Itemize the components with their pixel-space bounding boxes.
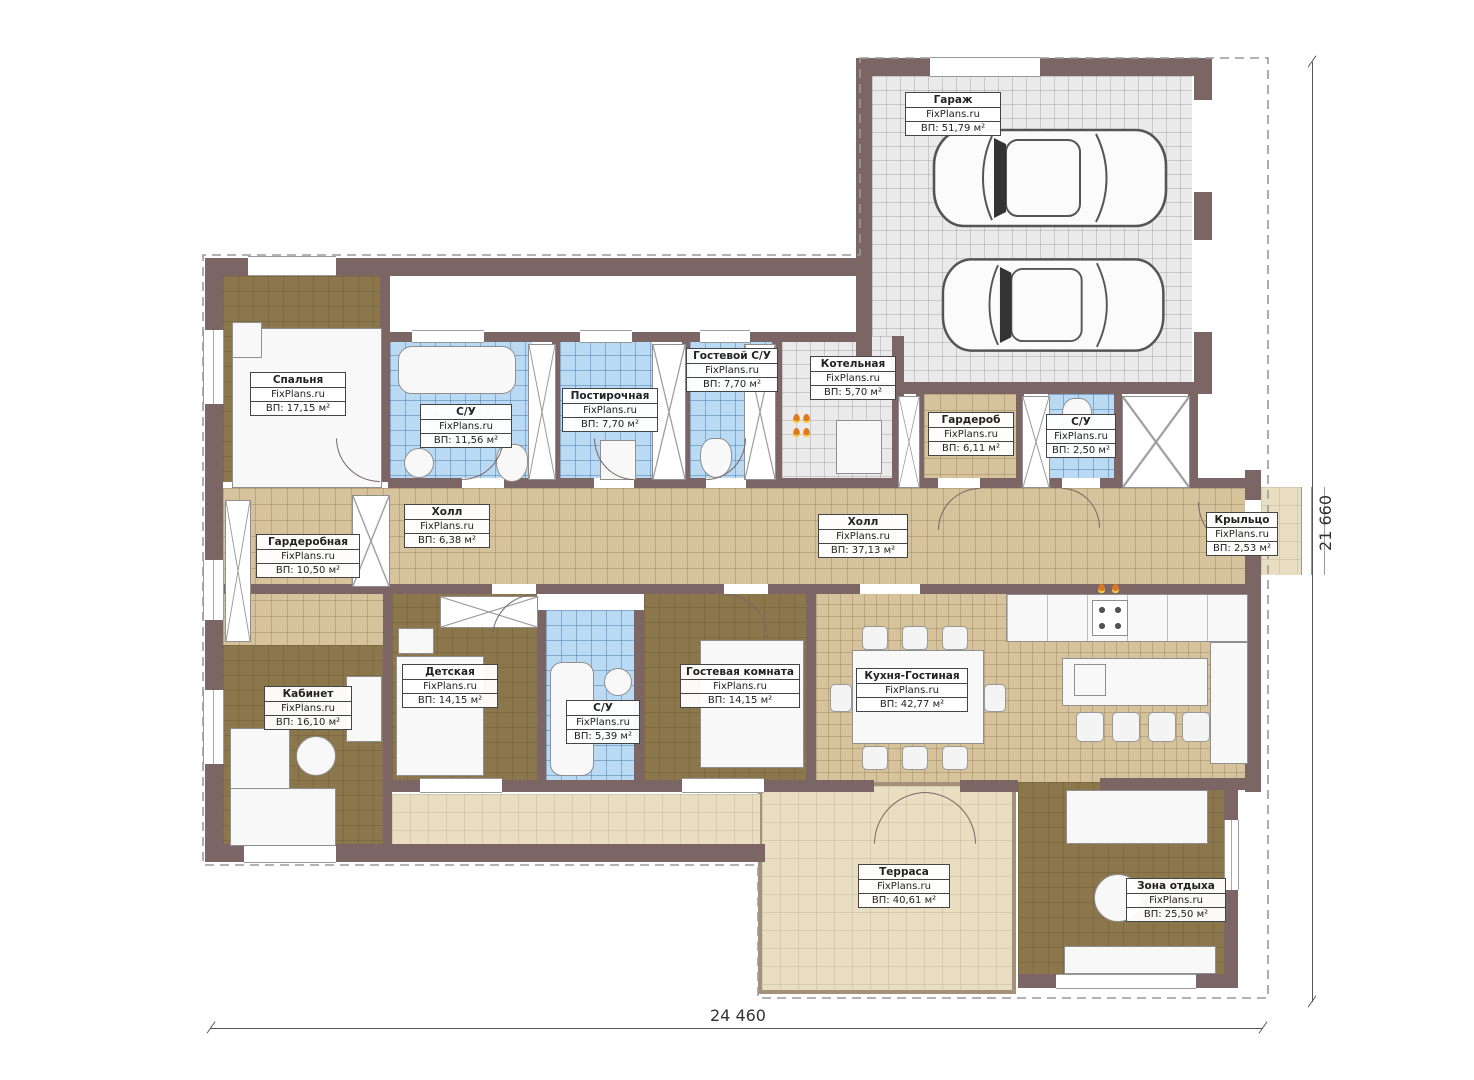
lounge-sofa [1066,790,1208,844]
sofa-section-horizontal [230,788,336,846]
room-area: ВП: 51,79 м² [905,122,1001,136]
nightstand [232,322,262,358]
room-area: ВП: 16,10 м² [264,716,352,730]
bar-stool [1182,712,1210,742]
car-icon [928,118,1178,238]
window-guest-bottom [682,778,764,793]
room-area: ВП: 2,50 м² [1046,444,1116,458]
watermark: FixPlans.ru [905,108,1001,122]
room-label-bathroom-2: С/У FixPlans.ru ВП: 5,39 м² [566,700,640,744]
room-name: Котельная [810,356,896,372]
room-label-garage: Гараж FixPlans.ru ВП: 51,79 м² [905,92,1001,136]
door-gap-guest-room [724,584,768,594]
room-name: Холл [818,514,908,530]
room-name: Постирочная [562,388,658,404]
dining-chair [942,746,968,770]
door-gap-kids [492,584,536,594]
room-name: Холл [404,504,490,520]
dimension-line-bottom [210,1028,1263,1029]
room-area: ВП: 40,61 м² [858,894,950,908]
watermark: FixPlans.ru [264,702,352,716]
room-label-lounge: Зона отдыха FixPlans.ru ВП: 25,50 м² [1126,878,1226,922]
window-guest-wc [700,330,750,343]
room-label-terrace: Терраса FixPlans.ru ВП: 40,61 м² [858,864,950,908]
dining-chair [902,746,928,770]
window-office-left [203,690,224,764]
room-name: Кухня-Гостиная [856,668,968,684]
bathtub [398,346,516,394]
room-area: ВП: 7,70 м² [562,418,658,432]
car-icon [936,248,1176,362]
flame-icon [793,414,800,423]
closet-x-icon [898,396,920,488]
dining-chair [830,684,852,712]
room-area: ВП: 10,50 м² [256,564,360,578]
watermark: FixPlans.ru [250,388,346,402]
watermark: FixPlans.ru [928,428,1014,442]
room-area: ВП: 5,70 м² [810,386,896,400]
watermark: FixPlans.ru [686,364,778,378]
room-name: Терраса [858,864,950,880]
flame-icon [803,428,810,437]
window-lounge-bottom [1056,974,1196,989]
room-name: Кабинет [264,686,352,702]
sink [604,668,632,696]
bar-stool [1148,712,1176,742]
coffee-table [296,736,336,776]
garage-door-2 [1194,240,1212,332]
room-name: С/У [420,404,512,420]
room-name: Гостевой С/У [686,348,778,364]
watermark: FixPlans.ru [402,680,498,694]
closet-x-icon [528,344,556,480]
garage-door-1 [1194,100,1212,192]
room-area: ВП: 37,13 м² [818,544,908,558]
dining-chair [862,626,888,650]
room-name: Гардеробная [256,534,360,550]
room-name: Зона отдыха [1126,878,1226,894]
room-label-wardrobe-room: Гардеробная FixPlans.ru ВП: 10,50 м² [256,534,360,578]
stove [1092,600,1128,636]
dimension-width-label: 24 460 [710,1006,766,1025]
room-area: ВП: 14,15 м² [680,694,800,708]
room-label-kitchen-living: Кухня-Гостиная FixPlans.ru ВП: 42,77 м² [856,668,968,712]
boiler-unit [836,420,882,474]
bar-stool [1112,712,1140,742]
room-label-bathroom-main: С/У FixPlans.ru ВП: 11,56 м² [420,404,512,448]
watermark: FixPlans.ru [680,680,800,694]
watermark: FixPlans.ru [810,372,896,386]
room-name: Гостевая комната [680,664,800,680]
closet-x-icon [225,500,251,642]
room-label-guest-wc: Гостевой С/У FixPlans.ru ВП: 7,70 м² [686,348,778,392]
watermark: FixPlans.ru [1206,528,1278,542]
room-name: Гардероб [928,412,1014,428]
island-sink [1074,664,1106,696]
dimension-height-label: 21 660 [1316,495,1335,551]
watermark: FixPlans.ru [256,550,360,564]
door-gap-wc-small [1062,478,1100,488]
tv-bench [1064,946,1216,974]
room-label-guest-room: Гостевая комната FixPlans.ru ВП: 14,15 м… [680,664,800,708]
watermark: FixPlans.ru [562,404,658,418]
room-name: С/У [1046,414,1116,430]
dining-chair [902,626,928,650]
watermark: FixPlans.ru [1046,430,1116,444]
room-label-office: Кабинет FixPlans.ru ВП: 16,10 м² [264,686,352,730]
room-label-hall-small: Холл FixPlans.ru ВП: 6,38 м² [404,504,490,548]
window-laundry [580,330,632,343]
dining-chair [862,746,888,770]
window-bath-main [412,330,484,343]
dimension-line-right [1312,62,1313,1002]
nightstand [398,628,434,654]
window-bedroom-left [203,330,224,404]
flame-icon [1098,584,1105,593]
room-area: ВП: 6,38 м² [404,534,490,548]
room-area: ВП: 17,15 м² [250,402,346,416]
room-area: ВП: 5,39 м² [566,730,640,744]
watermark: FixPlans.ru [1126,894,1226,908]
room-label-laundry: Постирочная FixPlans.ru ВП: 7,70 м² [562,388,658,432]
bar-stool [1076,712,1104,742]
watermark: FixPlans.ru [404,520,490,534]
room-area: ВП: 6,11 м² [928,442,1014,456]
room-label-kids-room: Детская FixPlans.ru ВП: 14,15 м² [402,664,498,708]
room-area: ВП: 42,77 м² [856,698,968,712]
watermark: FixPlans.ru [858,880,950,894]
room-name: С/У [566,700,640,716]
watermark: FixPlans.ru [818,530,908,544]
room-label-wardrobe: Гардероб FixPlans.ru ВП: 6,11 м² [928,412,1014,456]
door-gap-kitchen [860,584,920,594]
room-label-porch: Крыльцо FixPlans.ru ВП: 2,53 м² [1206,512,1278,556]
room-label-boiler: Котельная FixPlans.ru ВП: 5,70 м² [810,356,896,400]
watermark: FixPlans.ru [856,684,968,698]
window-lounge-right [1224,820,1239,890]
room-area: ВП: 7,70 м² [686,378,778,392]
room-label-wc-small: С/У FixPlans.ru ВП: 2,50 м² [1046,414,1116,458]
tall-cabinet [1210,642,1248,764]
dining-chair [942,626,968,650]
room-area: ВП: 14,15 м² [402,694,498,708]
room-name: Крыльцо [1206,512,1278,528]
window-wardrobe-left [203,560,224,620]
watermark: FixPlans.ru [420,420,512,434]
dining-chair [984,684,1006,712]
room-name: Спальня [250,372,346,388]
room-name: Детская [402,664,498,680]
window-kids-bottom [420,778,502,793]
floor-plan: Гараж FixPlans.ru ВП: 51,79 м² Спальня F… [0,0,1474,1080]
room-label-hall-main: Холл FixPlans.ru ВП: 37,13 м² [818,514,908,558]
sink [404,448,434,478]
flame-icon [793,428,800,437]
room-area: ВП: 11,56 м² [420,434,512,448]
flame-icon [803,414,810,423]
closet-x-icon [1122,396,1190,488]
door-gap-wardrobe [938,478,980,488]
window-bedroom-top [248,256,336,276]
room-label-bedroom: Спальня FixPlans.ru ВП: 17,15 м² [250,372,346,416]
watermark: FixPlans.ru [566,716,640,730]
window-garage-top [930,57,1040,77]
room-area: ВП: 2,53 м² [1206,542,1278,556]
room-name: Гараж [905,92,1001,108]
room-area: ВП: 25,50 м² [1126,908,1226,922]
flame-icon [1112,584,1119,593]
